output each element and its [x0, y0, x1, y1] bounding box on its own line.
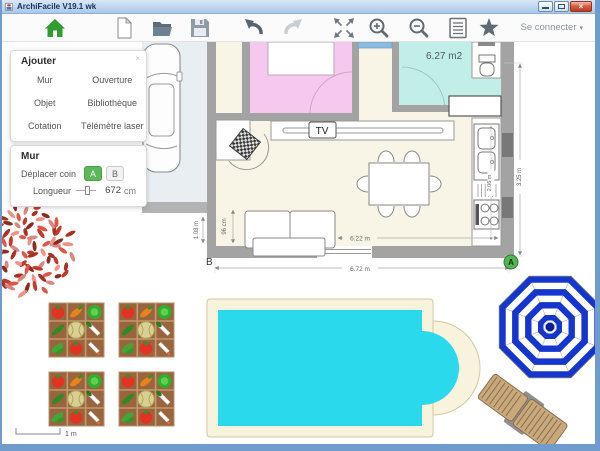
fit-screen-button[interactable] [331, 15, 357, 41]
window-right-2 [502, 197, 513, 218]
new-document-icon [111, 15, 137, 41]
length-value[interactable]: 672 [105, 185, 121, 196]
new-document-button[interactable] [111, 15, 137, 41]
close-button[interactable]: × [570, 1, 592, 12]
move-corner-row: Déplacer coin A B [21, 166, 136, 181]
plan-canvas[interactable]: TV [2, 42, 595, 444]
slider-handle[interactable] [85, 186, 90, 195]
dim-sofa-depth: 96 cm [222, 218, 228, 234]
favorites-button[interactable] [476, 15, 502, 41]
garden-plot[interactable] [119, 372, 174, 426]
add-wall-button[interactable]: Mur [11, 69, 79, 92]
wall-panel-title: Mur [21, 151, 136, 162]
add-library-button[interactable]: Bibliothèque [79, 92, 147, 115]
add-panel-buttons: Mur Ouverture Objet Bibliothèque Cotatio… [11, 69, 146, 138]
app-icon [5, 3, 13, 11]
plan-list-button[interactable] [445, 15, 471, 41]
redo-button[interactable] [280, 15, 306, 41]
move-corner-label: Déplacer coin [21, 169, 76, 179]
dim-outer-width: 6.72 m [350, 266, 370, 273]
svg-text:A: A [508, 258, 514, 267]
zoom-out-button[interactable] [406, 15, 432, 41]
corner-b-marker[interactable]: B [206, 257, 213, 268]
window-controls: × [538, 1, 592, 12]
plan-list-icon [445, 15, 471, 41]
dining-table [369, 163, 429, 205]
dim-inner-width: 6.22 m [350, 236, 370, 243]
maximize-button[interactable] [554, 1, 569, 12]
sofa[interactable] [245, 211, 335, 256]
zoom-in-button[interactable] [366, 15, 392, 41]
save-button[interactable] [187, 15, 213, 41]
home-button[interactable] [42, 15, 68, 41]
dim-left-segment: 1.08 m [194, 221, 200, 239]
close-icon: × [579, 2, 584, 11]
bathroom-area-label: 6.27 m2 [426, 51, 463, 62]
length-unit: cm [124, 186, 136, 196]
car[interactable] [143, 44, 182, 172]
titlebar: ArchiFacile V19.1 wk × [2, 0, 595, 14]
deck-chair[interactable] [475, 370, 570, 444]
add-laser-button[interactable]: Télémètre laser [79, 115, 147, 138]
length-label: Longueur [33, 186, 71, 196]
window-hall [358, 42, 392, 48]
garden-plot[interactable] [49, 303, 104, 357]
save-icon [187, 15, 213, 41]
home-icon [42, 15, 68, 41]
app-window: ArchiFacile V19.1 wk × [0, 0, 600, 451]
tv-unit[interactable]: TV [271, 121, 454, 140]
add-object-button[interactable]: Objet [11, 92, 79, 115]
connect-button[interactable]: Se connecter▾ [521, 22, 584, 33]
scale-label: 1 m [65, 431, 77, 438]
redo-icon [280, 15, 306, 41]
bush[interactable] [2, 200, 76, 299]
length-row: Longueur 672 cm [33, 185, 136, 196]
bathroom-cabinet[interactable] [449, 96, 501, 116]
connect-label: Se connecter [521, 22, 577, 33]
maximize-icon [558, 4, 565, 9]
minimize-icon [542, 7, 549, 9]
corner-a-marker[interactable]: A [504, 255, 518, 269]
parasol[interactable] [499, 276, 595, 378]
dim-right-side: 3.25 m [517, 168, 523, 186]
window-right-1 [502, 133, 513, 157]
add-panel: Ajouter × Mur Ouverture Objet Bibliothèq… [10, 50, 147, 142]
toilet[interactable] [472, 42, 501, 78]
undo-icon [241, 15, 267, 41]
add-dimension-button[interactable]: Cotation [11, 115, 79, 138]
scale-bar: 1 m [16, 428, 77, 438]
dim-kitchen: 2.06 m [487, 174, 493, 191]
star-icon [476, 15, 502, 41]
fit-screen-icon [331, 15, 357, 41]
open-folder-button[interactable] [150, 15, 176, 41]
panel-close-icon[interactable]: × [135, 54, 140, 63]
tv-label: TV [316, 126, 329, 137]
length-slider[interactable] [76, 186, 96, 195]
garden-plot[interactable] [119, 303, 174, 357]
add-panel-title: Ajouter [21, 56, 136, 67]
zoom-in-icon [366, 15, 392, 41]
window-title: ArchiFacile V19.1 wk [17, 0, 96, 14]
bed[interactable] [268, 42, 334, 75]
corner-a-button[interactable]: A [84, 166, 102, 181]
toolbar: Se connecter▾ [2, 14, 595, 42]
chevron-down-icon: ▾ [579, 25, 583, 32]
garden-plot[interactable] [49, 372, 104, 426]
wall-panel: Mur Déplacer coin A B Longueur 672 cm [10, 145, 147, 207]
corner-b-button[interactable]: B [106, 166, 124, 181]
zoom-out-icon [406, 15, 432, 41]
minimize-button[interactable] [538, 1, 553, 12]
open-folder-icon [150, 15, 176, 41]
add-opening-button[interactable]: Ouverture [79, 69, 147, 92]
stove [474, 200, 499, 229]
sink [474, 124, 499, 180]
pool[interactable] [207, 299, 480, 437]
undo-button[interactable] [241, 15, 267, 41]
